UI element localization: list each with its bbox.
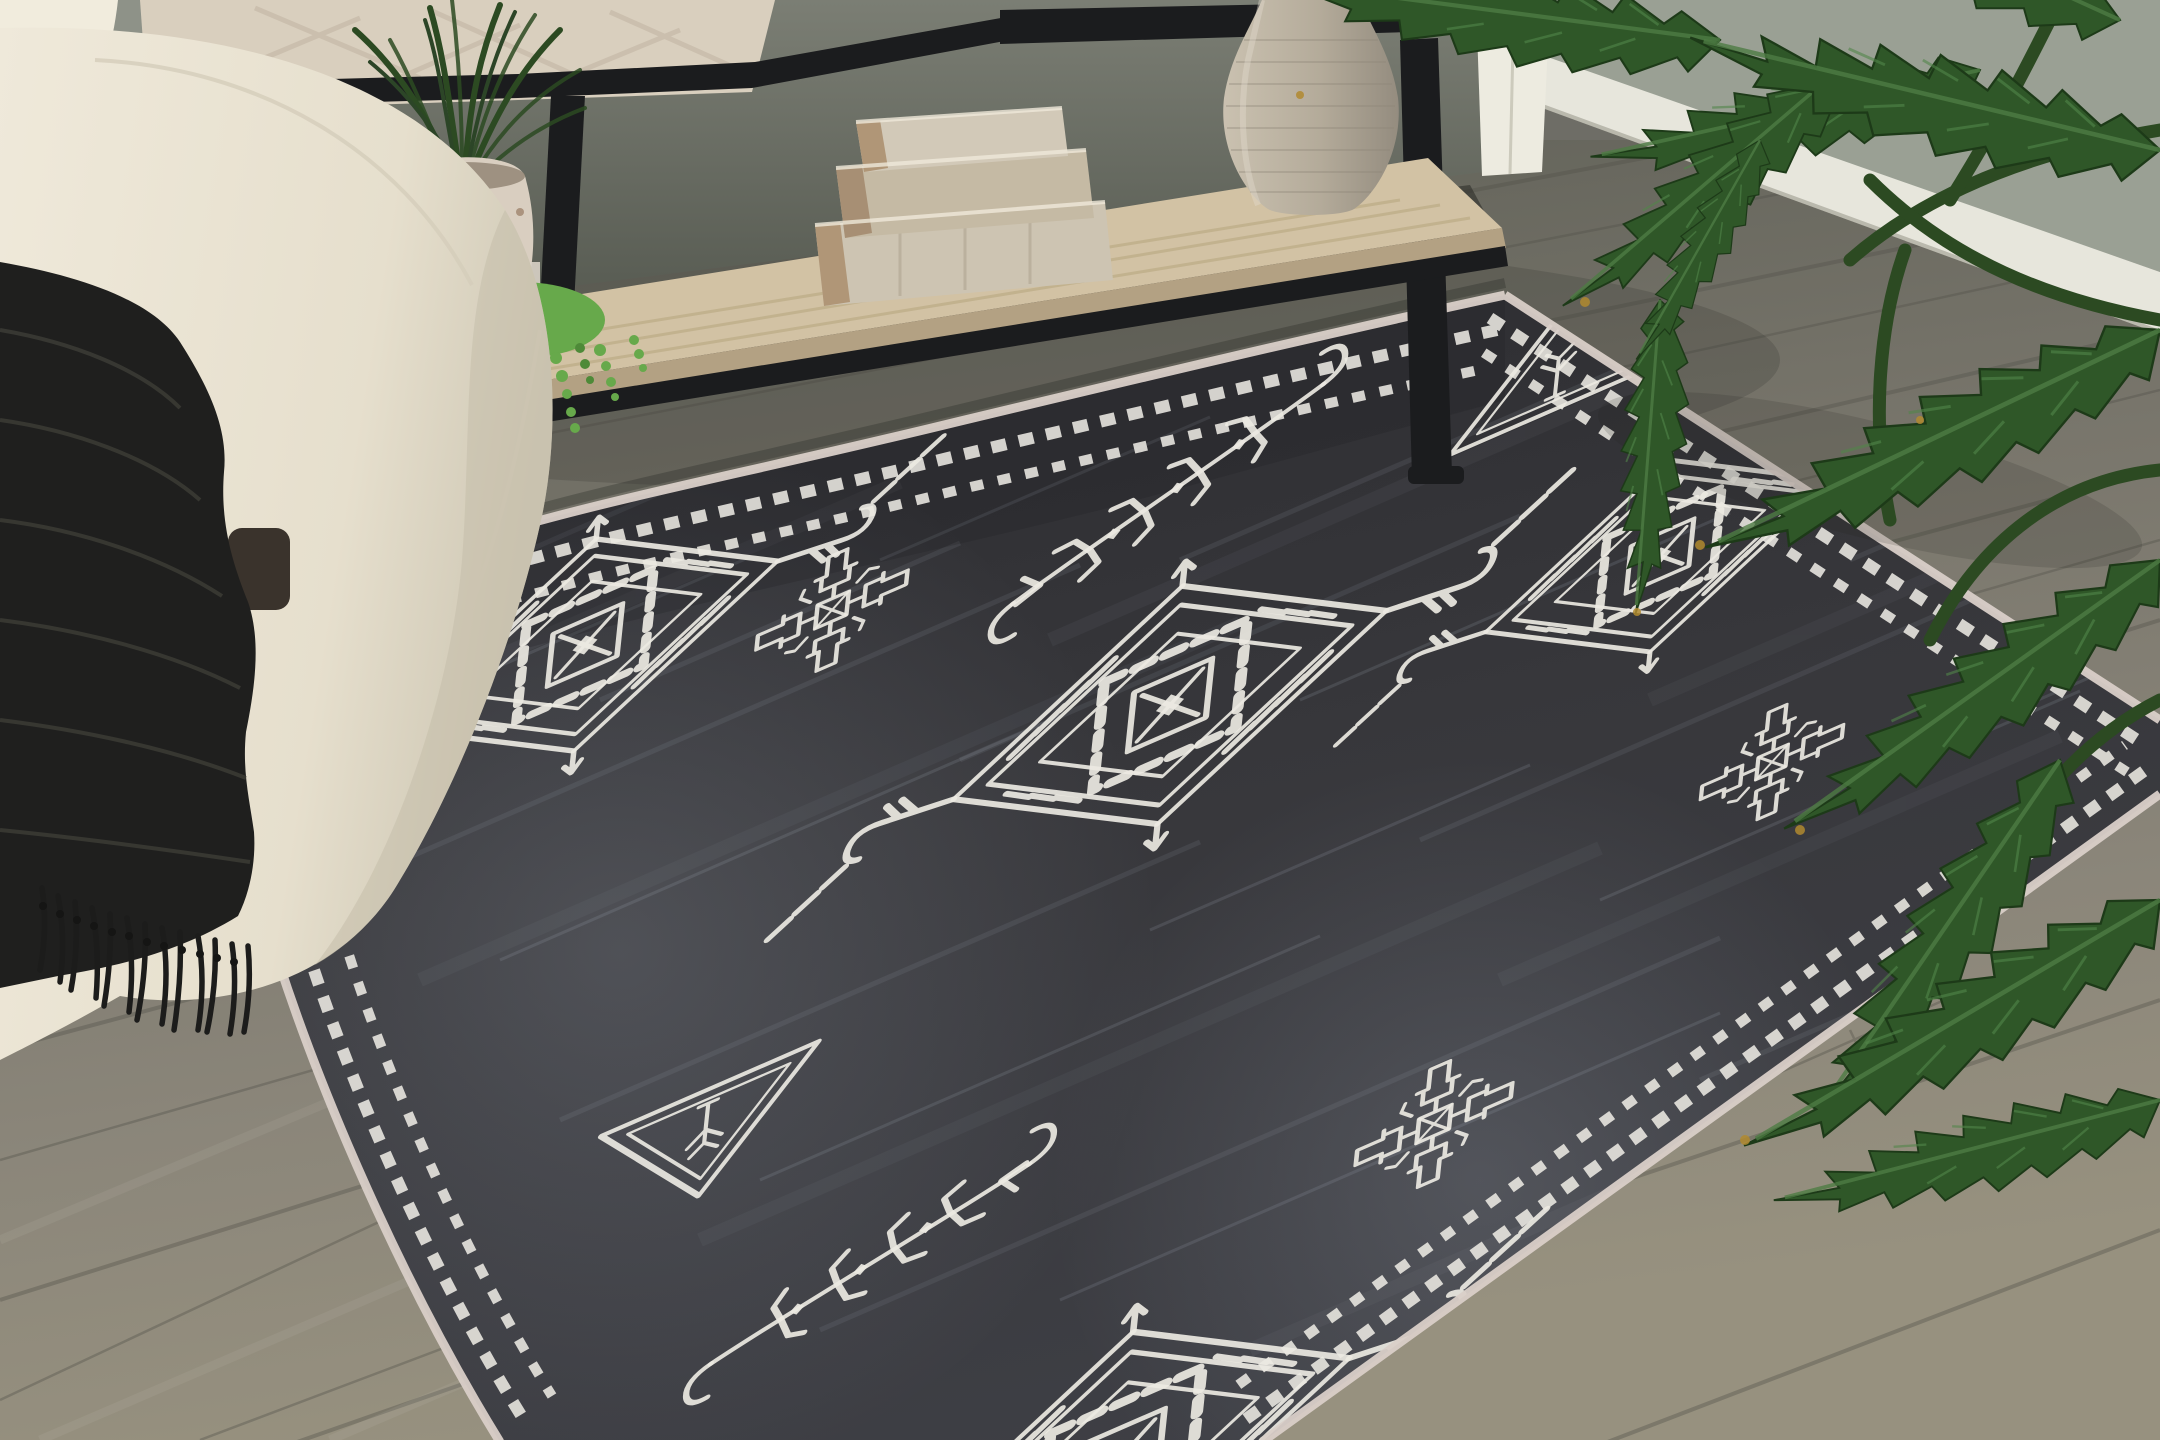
vase [1223,0,1399,215]
table-foot-right [1408,466,1464,484]
living-room-photo: Lifestyle photo of a charcoal gray distr… [0,0,2160,1440]
scene-canvas [0,0,2160,1440]
